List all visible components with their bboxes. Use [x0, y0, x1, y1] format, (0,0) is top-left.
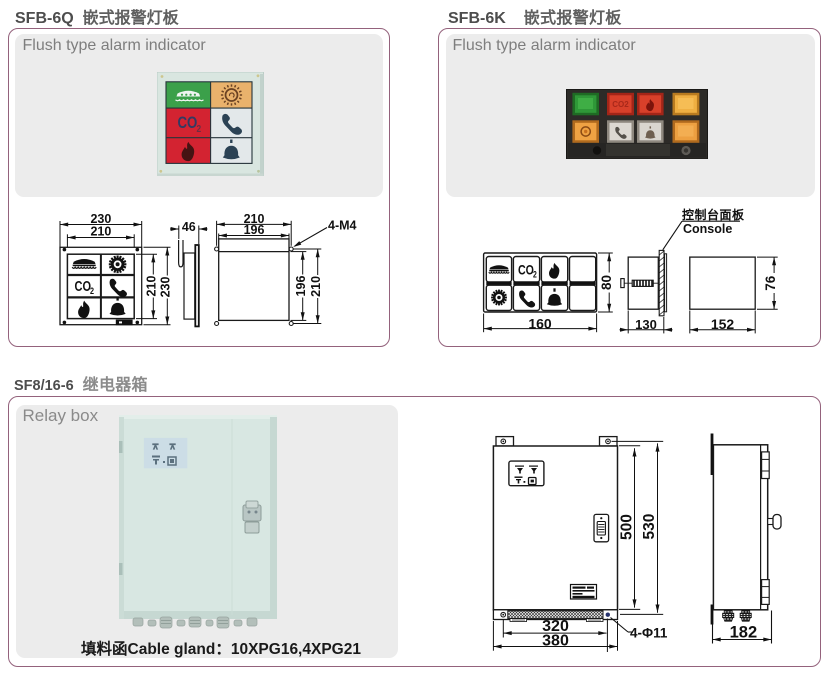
svg-text:控制台面板: 控制台面板	[682, 207, 745, 222]
svg-text:230: 230	[159, 277, 173, 298]
svg-text:2: 2	[533, 270, 537, 280]
svg-text:CO2: CO2	[612, 100, 629, 109]
svg-text:CO: CO	[518, 262, 534, 278]
svg-text:530: 530	[641, 514, 658, 540]
svg-text:196: 196	[294, 276, 308, 297]
svg-text:2: 2	[90, 285, 94, 296]
svg-text:160: 160	[528, 315, 552, 331]
svg-text:380: 380	[542, 633, 569, 650]
svg-text:210: 210	[309, 276, 323, 297]
svg-text:Console: Console	[683, 222, 732, 236]
svg-text:CO: CO	[178, 114, 198, 133]
svg-text:130: 130	[635, 317, 657, 332]
svg-text:46: 46	[182, 220, 196, 234]
svg-text:80: 80	[599, 275, 614, 290]
svg-text:152: 152	[711, 316, 735, 332]
svg-text:4-Φ11: 4-Φ11	[630, 626, 668, 641]
svg-text:4-M4: 4-M4	[328, 219, 357, 233]
svg-text:182: 182	[730, 624, 758, 642]
svg-text:76: 76	[763, 275, 778, 291]
svg-text:CO: CO	[75, 277, 92, 294]
svg-text:210: 210	[90, 225, 111, 239]
svg-text:210: 210	[145, 276, 159, 297]
svg-text:2: 2	[197, 123, 202, 135]
svg-text:500: 500	[619, 514, 636, 540]
svg-text:196: 196	[244, 223, 265, 237]
